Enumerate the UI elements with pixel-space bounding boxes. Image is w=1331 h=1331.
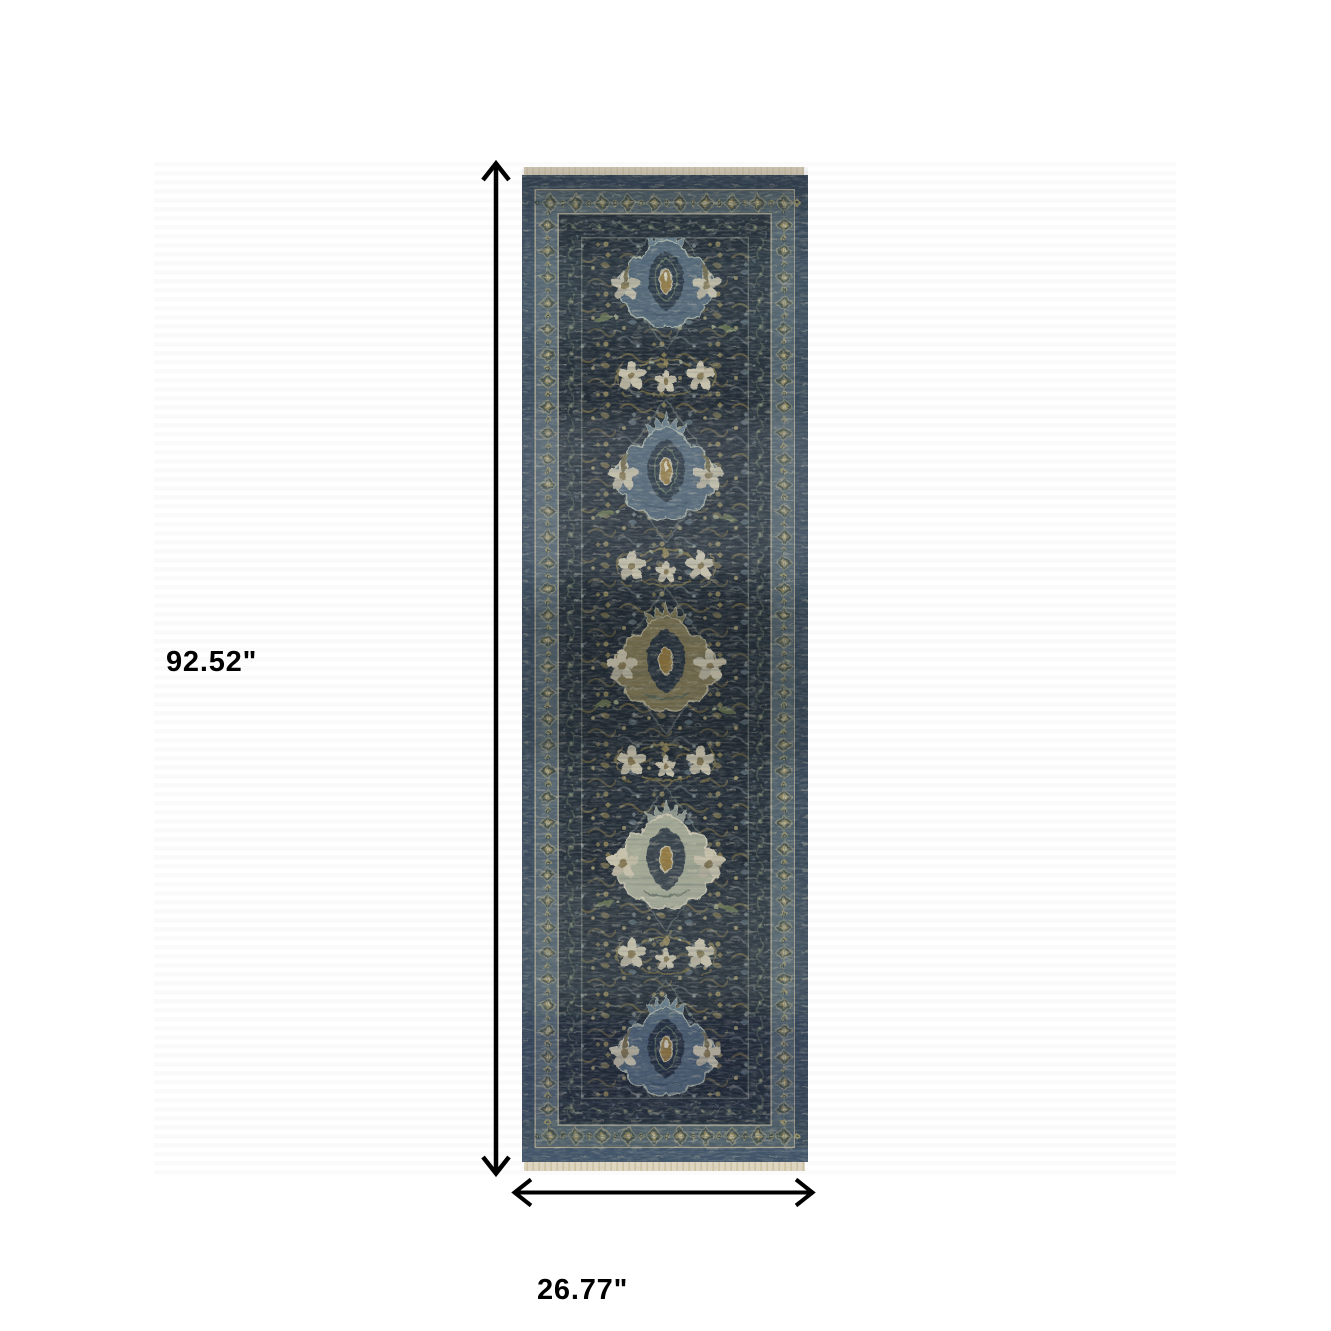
svg-text:26.77": 26.77": [537, 1274, 628, 1306]
svg-text:92.52": 92.52": [166, 646, 257, 678]
